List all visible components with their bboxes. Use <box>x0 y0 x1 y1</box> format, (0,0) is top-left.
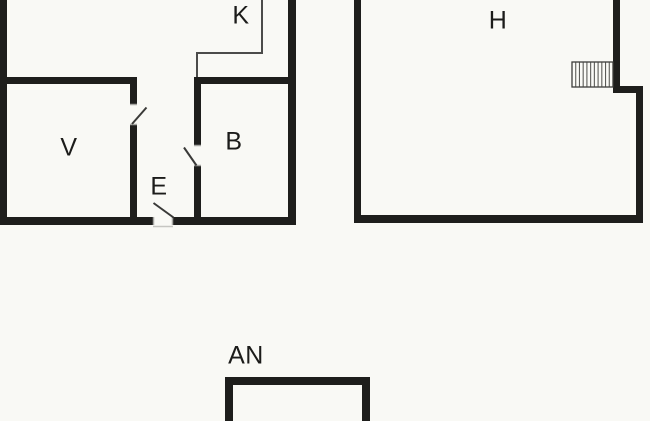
door-jamb-caps <box>130 105 201 226</box>
room-label-h: H <box>489 7 508 36</box>
room-label-e: E <box>150 173 167 202</box>
kitchen-partition-line <box>197 0 262 77</box>
entry-door-swing-line <box>154 203 174 218</box>
stairs-outline <box>572 62 613 87</box>
room-label-b: B <box>225 128 242 157</box>
room-label-an: AN <box>228 342 264 371</box>
v-door-swing-line <box>132 108 147 125</box>
b-door-swing-line <box>184 148 197 166</box>
floor-plan: K V B E H AN <box>0 0 650 421</box>
room-label-k: K <box>232 2 249 31</box>
stairs-icon <box>572 62 613 87</box>
thin-details-overlay <box>0 0 650 421</box>
room-label-v: V <box>60 134 77 163</box>
